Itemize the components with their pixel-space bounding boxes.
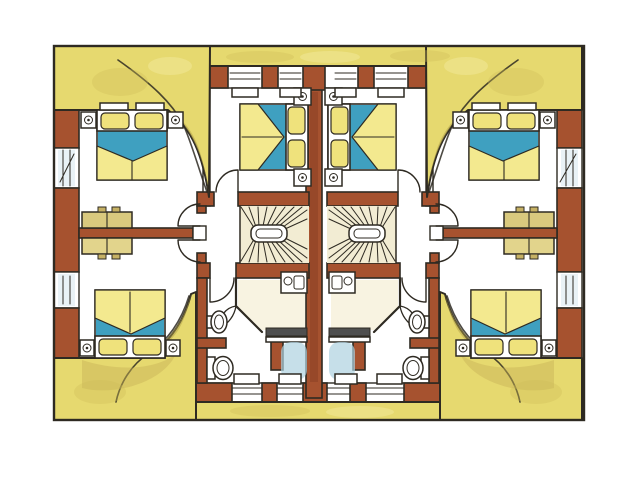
east-wall xyxy=(557,108,582,358)
window-sill xyxy=(234,374,259,384)
bedroom-partition-wall xyxy=(79,228,193,238)
window-sill xyxy=(279,374,301,384)
south-wall-pier xyxy=(404,383,440,402)
scanned-floorplan-page xyxy=(0,0,640,480)
double-bed xyxy=(97,103,167,180)
double-bed xyxy=(240,104,308,170)
bathroom-side-wall xyxy=(197,278,207,383)
bathroom-stub-wall xyxy=(197,338,226,348)
stair-north-wall xyxy=(238,192,309,206)
winder-staircase xyxy=(240,206,309,263)
hall-south-wall xyxy=(197,263,210,278)
toilet xyxy=(207,357,233,380)
double-bed xyxy=(95,290,165,358)
floor-plan-image xyxy=(0,0,640,480)
north-wall-pier xyxy=(262,66,278,88)
shower-screen xyxy=(266,328,307,336)
south-wall-pier xyxy=(196,383,232,402)
north-wall-pier xyxy=(358,66,374,88)
door-jamb-box xyxy=(193,226,206,240)
south-wall-pier xyxy=(350,383,366,402)
window-sill xyxy=(280,88,301,97)
window-sill xyxy=(232,88,258,97)
south-wall-pier xyxy=(262,383,277,402)
west-wall xyxy=(54,108,79,358)
hall-west-jamb xyxy=(197,206,206,213)
